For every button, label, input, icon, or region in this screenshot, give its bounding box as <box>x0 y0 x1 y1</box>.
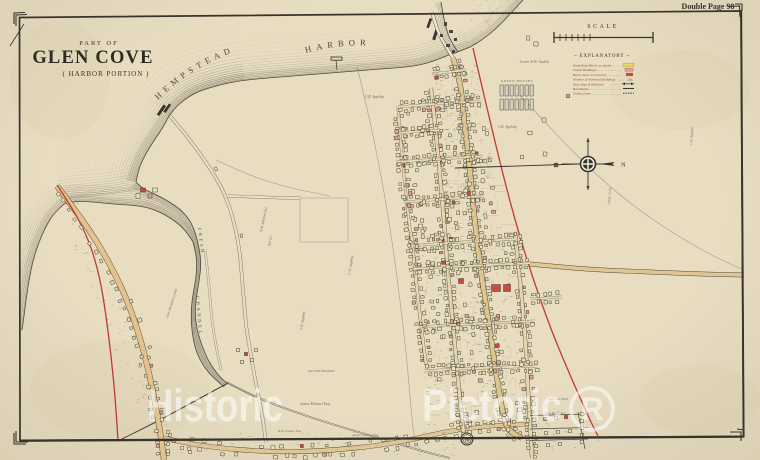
svg-text:R: R <box>580 391 603 427</box>
svg-text:Lower E.W. Audrin: Lower E.W. Audrin <box>519 60 549 64</box>
svg-text:James Osborn Esq.: James Osborn Esq. <box>352 433 379 437</box>
svg-text:2½: 2½ <box>628 78 633 82</box>
svg-text:PART OF: PART OF <box>79 40 118 47</box>
svg-text:~ EXPLANATORY ~: ~ EXPLANATORY ~ <box>574 54 630 59</box>
svg-text:Rail Roads: Rail Roads <box>572 87 589 91</box>
svg-text:SCALE: SCALE <box>587 24 619 30</box>
svg-text:C.R. Appleby: C.R. Appleby <box>498 125 517 129</box>
svg-text:GREEN HOUSES: GREEN HOUSES <box>501 79 533 83</box>
svg-text:James Michael Esq.: James Michael Esq. <box>300 402 331 406</box>
svg-text:Number of Stories of Buildings: Number of Stories of Buildings <box>572 78 616 82</box>
svg-text:Double Page 98: Double Page 98 <box>682 2 735 11</box>
svg-text:Frame Buildings: Frame Buildings <box>572 68 597 72</box>
svg-text:Road Beds Blocks as signed: Road Beds Blocks as signed <box>572 64 611 68</box>
svg-text:Trolley Lines: Trolley Lines <box>573 92 591 96</box>
svg-text:Hose Sign & Hydrants: Hose Sign & Hydrants <box>572 82 604 86</box>
svg-text:GLEN COVE: GLEN COVE <box>32 48 153 68</box>
svg-text:C.R. Appleby: C.R. Appleby <box>365 95 384 99</box>
svg-text:Pictoric: Pictoric <box>422 380 562 431</box>
svg-text:SALT HAY MEADOW: SALT HAY MEADOW <box>308 369 335 373</box>
svg-text:( HARBOR PORTION ): ( HARBOR PORTION ) <box>63 70 150 78</box>
svg-text:N: N <box>621 162 626 169</box>
svg-text:Historic: Historic <box>147 380 283 431</box>
